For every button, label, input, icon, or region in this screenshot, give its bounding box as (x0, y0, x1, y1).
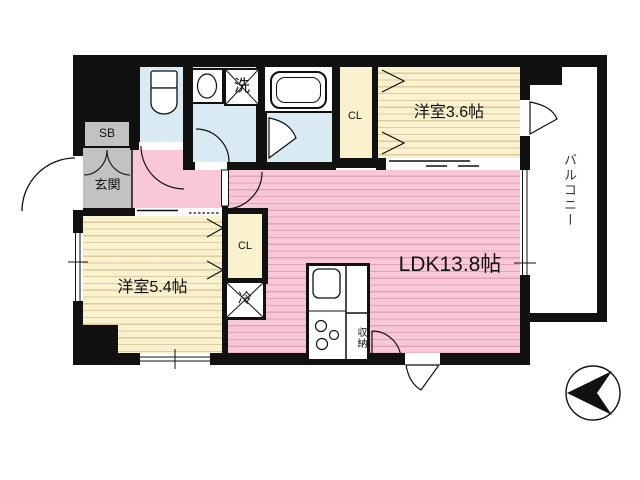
label-entrance: 玄関 (83, 178, 132, 192)
service-door-wedge (406, 365, 439, 390)
label-refrigerator: 冷 (224, 291, 266, 306)
wall-balcony-right (597, 55, 607, 322)
label-laundry: 洗 (226, 78, 258, 96)
compass-north-icon (566, 366, 620, 420)
label-ldk: LDK13.8帖 (380, 253, 520, 276)
toilet-room (140, 67, 183, 142)
floor-plan: LDK13.8帖 洋室3.6帖 洋室5.4帖 CL CL 玄関 SB 洗 冷 収… (0, 0, 640, 480)
front-door-opening (73, 156, 83, 210)
washroom-door-opening (195, 162, 227, 170)
label-shoe-box: SB (83, 127, 131, 140)
service-door-opening (405, 353, 440, 365)
pillar-balcony-top (527, 67, 562, 85)
wall-top (73, 55, 607, 67)
sliding-door-room36 (386, 158, 520, 170)
wall-balcony-bottom (528, 313, 607, 322)
label-room-5-4: 洋室5.4帖 (95, 279, 210, 297)
wall-interior (130, 67, 140, 150)
label-balcony: バルコニー (556, 133, 576, 248)
toilet-door-opening (139, 142, 183, 150)
label-closet-lower: CL (222, 240, 268, 252)
label-storage: 収納 (347, 318, 366, 358)
label-closet-upper: CL (332, 110, 378, 122)
hallway (183, 170, 222, 208)
sliding-door-room54 (135, 208, 222, 216)
washbasin-box (191, 68, 224, 104)
balcony-door-opening (520, 100, 530, 136)
front-door-arc (22, 158, 75, 211)
hallway (132, 150, 183, 208)
window-ldk-balcony (520, 170, 530, 275)
pipe-space (83, 67, 131, 120)
window-bottom (140, 353, 210, 365)
window-left (73, 233, 83, 301)
label-room-3-6: 洋室3.6帖 (388, 104, 510, 122)
bathtub-inner (276, 77, 321, 103)
